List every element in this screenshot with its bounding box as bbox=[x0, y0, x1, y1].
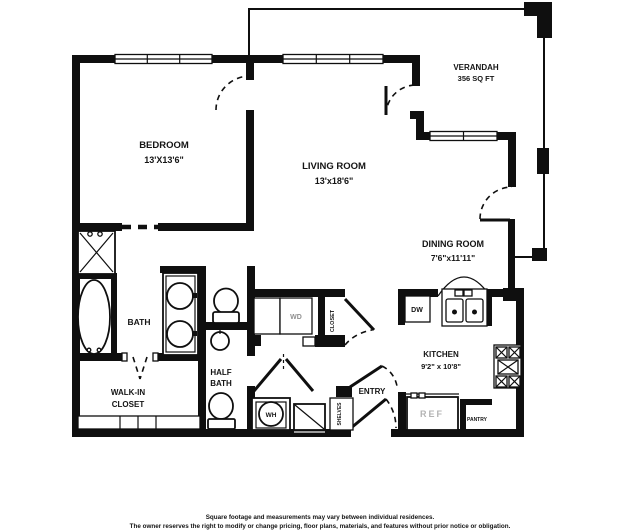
verandah-boundary bbox=[248, 2, 552, 261]
dining-window bbox=[430, 132, 497, 141]
footer-disclaimer-line1: Square footage and measurements may vary… bbox=[206, 514, 435, 521]
closet-label: CLOSET bbox=[330, 309, 336, 332]
closet-angled-wall bbox=[345, 299, 374, 330]
bedroom-window bbox=[115, 55, 212, 64]
shower-icon bbox=[78, 231, 115, 274]
verandah-post-lower bbox=[532, 248, 547, 261]
shelves-label: SHELVES bbox=[337, 402, 343, 426]
verandah-label: VERANDAH bbox=[453, 63, 499, 72]
refrigerator-label: REF bbox=[420, 409, 444, 419]
linen-cabinet-icon bbox=[294, 404, 325, 432]
bath-door bbox=[122, 353, 158, 379]
living-room-dimensions: 13'x18'6" bbox=[315, 176, 354, 186]
verandah-post bbox=[537, 148, 549, 174]
bath-toilet-icon bbox=[213, 289, 239, 324]
bedroom-dimensions: 13'X13'6" bbox=[144, 155, 184, 165]
vanity-double-sink-icon bbox=[163, 273, 198, 355]
dining-room-dimensions: 7'6"x11'11" bbox=[431, 253, 475, 263]
verandah-area: 356 SQ FT bbox=[458, 74, 495, 83]
kitchen-dimensions: 9'2" x 10'8" bbox=[421, 362, 461, 371]
pantry-label: PANTRY bbox=[467, 417, 488, 423]
floor-plan-page: BEDROOM 13'X13'6" LIVING ROOM 13'x18'6" … bbox=[0, 0, 639, 532]
living-room-label: LIVING ROOM bbox=[302, 161, 366, 172]
half-bath-label-line1: HALF bbox=[210, 368, 231, 377]
kitchen-label: KITCHEN bbox=[423, 350, 459, 359]
living-room-window bbox=[283, 55, 383, 64]
entry-label: ENTRY bbox=[359, 387, 386, 396]
dining-room-label: DINING ROOM bbox=[422, 239, 484, 249]
closet-shelf-band bbox=[78, 416, 200, 429]
walk-in-closet-label-line1: WALK-IN bbox=[111, 388, 145, 397]
walk-in-closet-label-line2: CLOSET bbox=[112, 400, 145, 409]
washer-dryer-label: WD bbox=[290, 314, 302, 321]
stove-icon bbox=[494, 345, 521, 388]
living-verandah-door bbox=[386, 85, 416, 115]
washer-dryer-icon bbox=[254, 298, 312, 334]
kitchen-sink-icon bbox=[442, 289, 487, 326]
half-bath-label-line2: BATH bbox=[210, 379, 232, 388]
bedroom-label: BEDROOM bbox=[139, 140, 189, 151]
closet-door bbox=[345, 330, 372, 345]
dining-verandah-door bbox=[480, 187, 512, 220]
bathtub-icon bbox=[78, 280, 110, 354]
hall-double-doors bbox=[254, 354, 313, 391]
footer-disclaimer-line2: The owner reserves the right to modify o… bbox=[130, 523, 511, 530]
water-heater-label: WH bbox=[266, 412, 277, 419]
bath-label: BATH bbox=[128, 317, 151, 327]
verandah-corner-post bbox=[524, 2, 552, 38]
floor-plan-canvas: BEDROOM 13'X13'6" LIVING ROOM 13'x18'6" … bbox=[0, 0, 639, 532]
door-jamb bbox=[303, 337, 315, 346]
entry-inner-door bbox=[350, 366, 397, 387]
half-bath-toilet-icon bbox=[208, 393, 235, 429]
front-door bbox=[351, 399, 396, 428]
half-bath-sink-icon bbox=[211, 330, 229, 350]
dishwasher-label: DW bbox=[411, 307, 423, 314]
bedroom-door bbox=[216, 76, 250, 110]
